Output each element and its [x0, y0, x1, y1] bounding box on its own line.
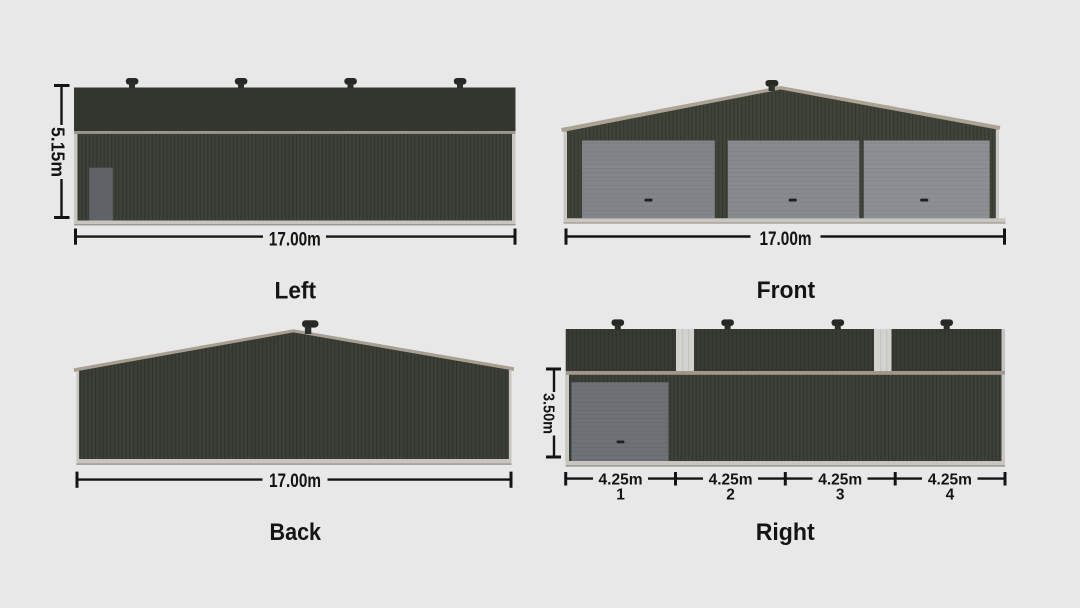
svg-text:17.00m: 17.00m — [269, 229, 321, 250]
svg-text:17.00m: 17.00m — [269, 471, 321, 492]
svg-text:Left: Left — [275, 277, 317, 304]
svg-text:2: 2 — [726, 487, 735, 504]
svg-text:3.50m: 3.50m — [540, 393, 557, 434]
svg-text:Front: Front — [757, 277, 816, 304]
svg-text:Right: Right — [756, 519, 815, 546]
svg-text:5.15m: 5.15m — [48, 127, 68, 177]
svg-text:1: 1 — [616, 487, 625, 504]
svg-text:17.00m: 17.00m — [760, 229, 812, 250]
svg-text:3: 3 — [836, 487, 845, 504]
svg-text:Back: Back — [270, 519, 322, 546]
svg-text:4: 4 — [946, 487, 955, 504]
